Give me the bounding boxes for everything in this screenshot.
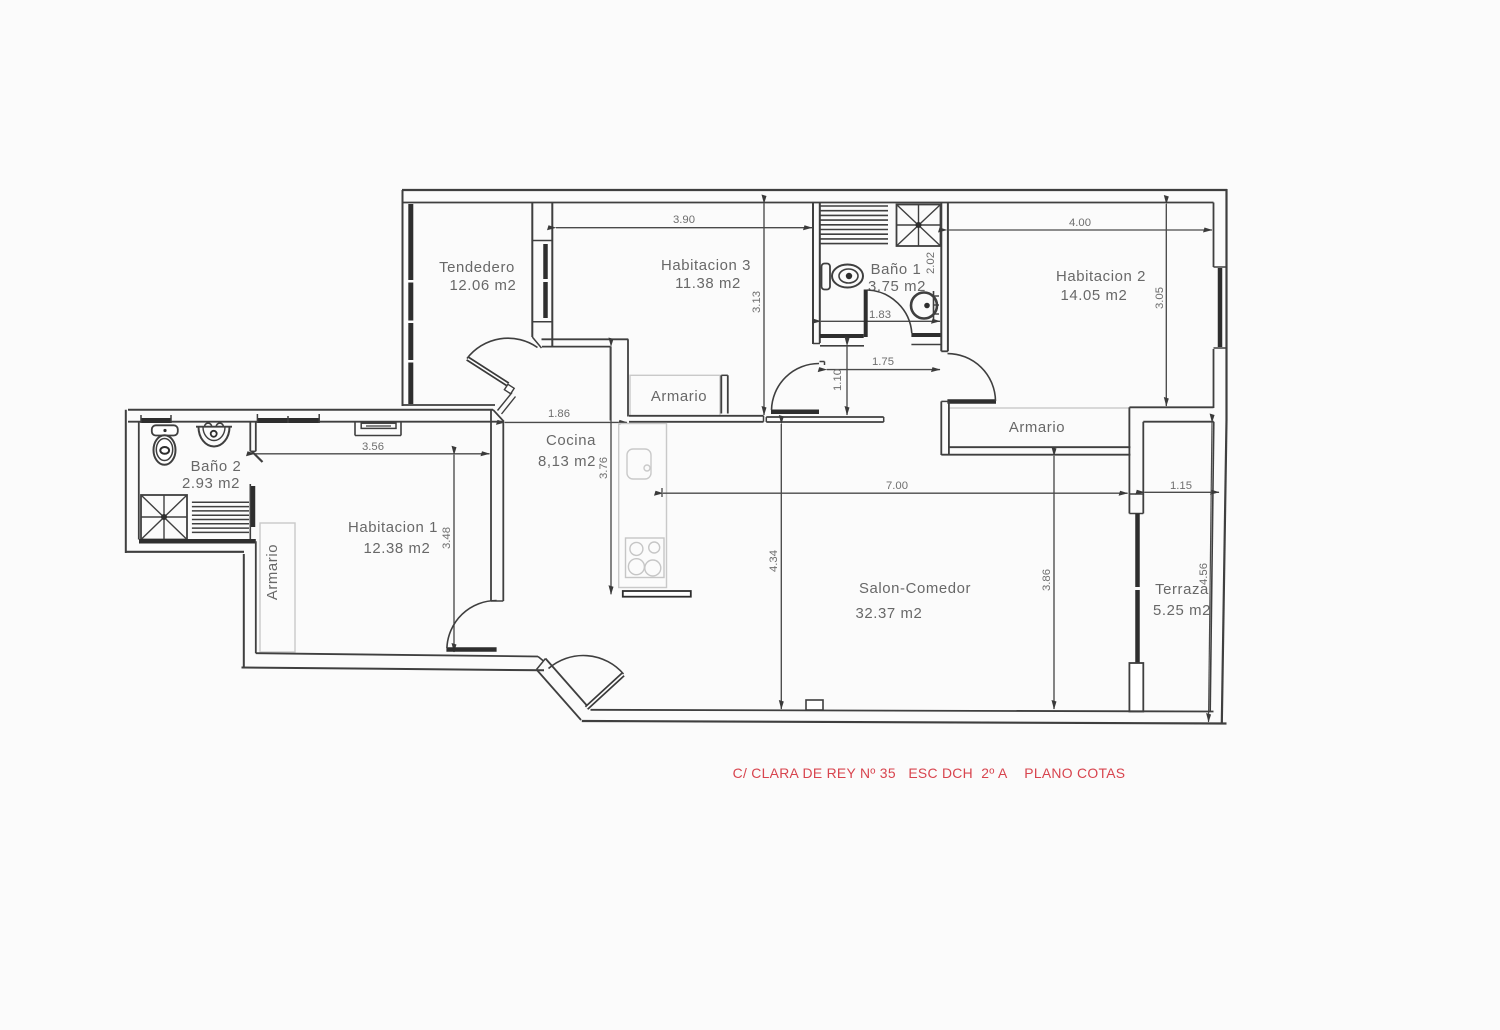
svg-text:C/ CLARA DE REY Nº 35 ESC DC: C/ CLARA DE REY Nº 35 ESC DCH 2º A PLANO…: [733, 765, 1126, 781]
svg-text:Salon-Comedor: Salon-Comedor: [859, 581, 971, 597]
svg-text:Armario: Armario: [1009, 420, 1065, 436]
svg-text:11.38 m2: 11.38 m2: [675, 276, 741, 292]
svg-text:3.56: 3.56: [362, 441, 384, 453]
svg-text:7.00: 7.00: [886, 480, 908, 492]
svg-text:2.93 m2: 2.93 m2: [182, 476, 240, 492]
svg-text:4.34: 4.34: [768, 550, 780, 572]
svg-text:Tendedero: Tendedero: [439, 260, 515, 276]
svg-text:1.86: 1.86: [548, 408, 570, 420]
svg-text:3.05: 3.05: [1154, 287, 1166, 309]
svg-text:1.83: 1.83: [869, 309, 891, 321]
svg-text:Habitacion 3: Habitacion 3: [661, 258, 751, 274]
svg-text:3.13: 3.13: [751, 291, 763, 313]
svg-text:3.90: 3.90: [673, 214, 695, 226]
svg-text:8,13 m2: 8,13 m2: [538, 454, 596, 470]
svg-text:Habitacion 2: Habitacion 2: [1056, 269, 1146, 285]
svg-text:1.75: 1.75: [872, 356, 894, 368]
svg-text:12.06 m2: 12.06 m2: [450, 278, 517, 294]
svg-text:Armario: Armario: [651, 389, 707, 405]
svg-text:3.76: 3.76: [598, 457, 610, 479]
svg-text:1.15: 1.15: [1170, 480, 1192, 492]
svg-text:3.75 m2: 3.75 m2: [868, 279, 926, 295]
svg-text:14.05 m2: 14.05 m2: [1061, 288, 1128, 304]
svg-text:Armario: Armario: [265, 544, 281, 600]
svg-text:1.10: 1.10: [832, 369, 844, 391]
svg-text:32.37 m2: 32.37 m2: [856, 606, 923, 622]
svg-text:2.02: 2.02: [925, 252, 937, 274]
svg-text:5.25 m2: 5.25 m2: [1153, 603, 1211, 619]
svg-text:Habitacion 1: Habitacion 1: [348, 520, 438, 536]
svg-text:4.00: 4.00: [1069, 217, 1091, 229]
svg-text:Cocina: Cocina: [546, 433, 596, 449]
svg-text:12.38 m2: 12.38 m2: [364, 541, 431, 557]
svg-text:Baño 1: Baño 1: [871, 262, 922, 278]
svg-text:Baño 2: Baño 2: [191, 459, 242, 475]
svg-text:3.86: 3.86: [1041, 569, 1053, 591]
svg-text:Terraza: Terraza: [1155, 582, 1209, 598]
svg-text:3.48: 3.48: [441, 527, 453, 549]
